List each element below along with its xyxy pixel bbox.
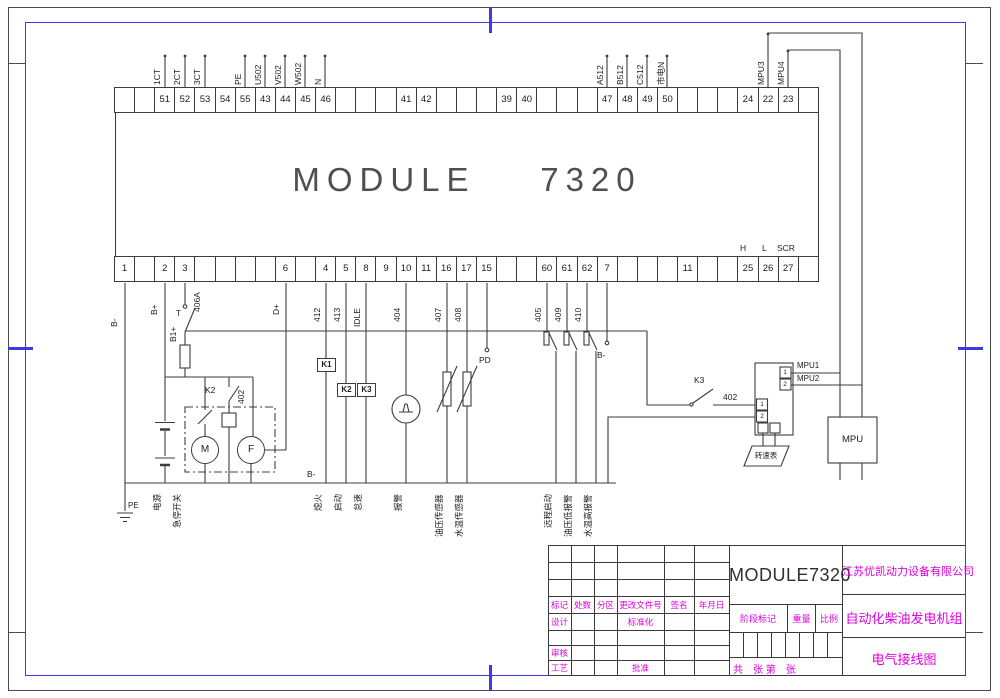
engine-label: 水温高报警 (582, 494, 594, 537)
label-b1-plus: B1+ (168, 327, 178, 342)
tb-drawing-name: 电气接线图 (842, 649, 966, 668)
terminal-cell: 39 (496, 87, 517, 113)
terminal-cell: 52 (174, 87, 195, 113)
conv-terminal-r1: 1 (780, 368, 790, 378)
label-mpu1: MPU1 (797, 361, 819, 370)
terminal-cell: 9 (375, 256, 396, 282)
label-b-minus-7: B- (597, 350, 606, 360)
label-d-plus: D+ (271, 304, 281, 315)
terminal-cell: 15 (476, 256, 497, 282)
label-t-switch: T (176, 309, 181, 318)
oil-alarm-switch-icon (564, 332, 569, 345)
relay-coil-icon (222, 413, 236, 427)
label-402-right: 402 (723, 392, 737, 402)
tb-header-count: 处数 (572, 599, 593, 611)
engine-label: 报警 (392, 494, 404, 511)
ground-icon (117, 513, 133, 522)
terminal-cell: 51 (154, 87, 175, 113)
label-406a: 406A (192, 292, 202, 312)
pin-label-scr: SCR (777, 243, 795, 253)
engine-label: 油压低报警 (562, 494, 574, 537)
terminal-cell: 55 (235, 87, 256, 113)
conv-terminal-r2: 2 (780, 380, 790, 390)
label-mpu2: MPU2 (797, 374, 819, 383)
terminal-cell: 7 (597, 256, 618, 282)
tb-approve: 批准 (618, 662, 663, 674)
tb-stage: 阶段标记 (729, 612, 787, 625)
label-b-minus: B- (109, 319, 119, 328)
terminal-cell: 22 (758, 87, 779, 113)
engine-label: 电源 (151, 494, 163, 511)
label-410: 410 (573, 308, 583, 322)
terminal-cell (697, 256, 718, 282)
terminal-cell: 41 (396, 87, 417, 113)
tb-sheets: 共 张 第 张 (733, 661, 823, 676)
terminal-cell: 48 (617, 87, 638, 113)
terminal-cell: 26 (758, 256, 779, 282)
terminal-cell: 45 (295, 87, 316, 113)
top-wire-label: PE (233, 74, 243, 85)
terminal-cell: 62 (577, 256, 598, 282)
top-wire-label: 3CT (192, 69, 202, 85)
engine-label: 启动 (332, 494, 344, 511)
top-wire-label: C512 (635, 65, 645, 85)
terminal-cell: 44 (275, 87, 296, 113)
terminal-cell (134, 256, 155, 282)
relay-k2: K2 (337, 383, 356, 397)
conv-terminal-1: 1 (757, 400, 767, 410)
label-pe: PE (128, 501, 139, 510)
terminal-cell (717, 87, 738, 113)
mpu-pickup: MPU (828, 417, 877, 463)
terminal-cell (677, 87, 698, 113)
terminal-cell (617, 256, 638, 282)
charging-generator: F (237, 436, 265, 464)
terminal-cell: 27 (778, 256, 799, 282)
top-wire-label: 2CT (172, 69, 182, 85)
tb-header-sign: 签名 (665, 599, 693, 611)
label-b-minus-bus: B- (307, 469, 316, 479)
terminal-cell: 6 (275, 256, 296, 282)
engine-label: 熄火 (312, 494, 324, 511)
remote-start-switch-icon (544, 332, 549, 345)
tb-product: 自动化柴油发电机组 (842, 608, 966, 627)
terminal-cell (798, 256, 819, 282)
tb-header-docno: 更改文件号 (618, 599, 663, 611)
pin-label-l: L (762, 243, 767, 253)
terminal-cell (194, 256, 215, 282)
fuse-icon (180, 345, 190, 368)
label-405: 405 (533, 308, 543, 322)
terminal-cell (215, 256, 236, 282)
terminal-cell: 4 (315, 256, 336, 282)
terminal-cell (536, 87, 557, 113)
terminal-cell (456, 87, 477, 113)
terminal-cell: 47 (597, 87, 618, 113)
terminal-cell (295, 256, 316, 282)
terminal-cell (798, 87, 819, 113)
top-wire-label: B512 (615, 65, 625, 85)
terminal-cell (717, 256, 738, 282)
tb-design: 设计 (549, 616, 570, 628)
label-tachometer: 转速表 (748, 450, 784, 461)
terminal-cell (375, 87, 396, 113)
terminal-cell: 16 (436, 256, 457, 282)
terminal-cell (556, 87, 577, 113)
terminal-cell: 43 (255, 87, 276, 113)
label-pd: PD (479, 355, 491, 365)
terminal-cell (114, 87, 135, 113)
terminal-cell: 25 (737, 256, 758, 282)
terminal-cell (235, 256, 256, 282)
top-wire-label: V502 (273, 65, 283, 85)
label-408: 408 (453, 308, 463, 322)
terminal-cell (516, 256, 537, 282)
tb-process: 工艺 (549, 662, 570, 674)
top-wire-label: 市电N (655, 62, 667, 85)
terminal-cell: 40 (516, 87, 537, 113)
tb-company: 江苏优凯动力设备有限公司 (842, 563, 966, 579)
terminal-cell: 53 (194, 87, 215, 113)
tb-header-date: 年月日 (695, 599, 728, 611)
engine-label: 水温传感器 (453, 494, 465, 537)
buzzer-icon (392, 395, 420, 423)
wire-end-dots (164, 33, 790, 58)
terminal-cell: 5 (335, 256, 356, 282)
label-409: 409 (553, 308, 563, 322)
terminal-cell (697, 87, 718, 113)
top-terminal-row: 5152535455434445464142394047484950242223 (115, 87, 819, 113)
label-407: 407 (433, 308, 443, 322)
tb-review: 审核 (549, 647, 570, 659)
tb-header-zone: 分区 (595, 599, 616, 611)
terminal-cell: 46 (315, 87, 336, 113)
relay-k3: K3 (357, 383, 376, 397)
terminal-cell: 3 (174, 256, 195, 282)
top-wire-label: 1CT (152, 69, 162, 85)
terminal-cell (496, 256, 517, 282)
terminal-cell (577, 87, 598, 113)
terminal-cell (436, 87, 457, 113)
terminal-cell: 8 (355, 256, 376, 282)
engine-label: 远程启动 (542, 494, 554, 528)
label-412: 412 (312, 308, 322, 322)
terminal-cell: 60 (536, 256, 557, 282)
relay-k1: K1 (317, 358, 336, 372)
terminal-cell: 54 (215, 87, 236, 113)
terminal-cell: 61 (556, 256, 577, 282)
terminal-cell (637, 256, 658, 282)
terminal-cell: 42 (416, 87, 437, 113)
label-k3-contact: K3 (694, 375, 704, 385)
top-wire-label: MPU3 (756, 61, 766, 85)
terminal-cell: 50 (657, 87, 678, 113)
terminal-cell: 23 (778, 87, 799, 113)
engine-label: 急停开关 (171, 494, 183, 528)
terminal-cell: 2 (154, 256, 175, 282)
top-wire-label: N (313, 79, 323, 85)
terminal-cell: 24 (737, 87, 758, 113)
terminal-cell (657, 256, 678, 282)
tb-scale: 比例 (816, 612, 842, 625)
starter-motor: M (191, 436, 219, 464)
water-alarm-switch-icon (584, 332, 589, 345)
top-wire-label: W502 (293, 63, 303, 85)
label-idle: IDLE (352, 308, 362, 327)
terminal-cell (355, 87, 376, 113)
label-b-plus: B+ (149, 304, 159, 315)
terminal-cell (255, 256, 276, 282)
top-wire-label: MPU4 (776, 61, 786, 85)
terminal-cell: 11 (677, 256, 698, 282)
terminal-cell: 49 (637, 87, 658, 113)
wiring-diagram: MODULE 7320 5152535455434445464142394047… (0, 0, 1000, 698)
label-k2-contact: K2 (205, 385, 215, 395)
terminal-cell: 11 (416, 256, 437, 282)
terminal-cell: 1 (114, 256, 135, 282)
engine-label: 怠速 (352, 494, 364, 511)
tb-model: MODULE7320 (729, 565, 842, 586)
tb-weight: 重量 (788, 612, 815, 625)
tb-standardize: 标准化 (618, 616, 663, 628)
terminal-cell (335, 87, 356, 113)
module-title: MODULE 7320 (115, 161, 819, 199)
engine-label: 油压传感器 (433, 494, 445, 537)
terminal-cell: 10 (396, 256, 417, 282)
label-402-left: 402 (236, 390, 246, 404)
terminal-cell (476, 87, 497, 113)
conv-terminal-2: 2 (757, 412, 767, 422)
label-413: 413 (332, 308, 342, 322)
bottom-terminal-row: 123645891011161715606162711252627 (115, 256, 819, 282)
label-404: 404 (392, 308, 402, 322)
terminal-cell: 17 (456, 256, 477, 282)
terminal-cell (134, 87, 155, 113)
pin-label-h: H (740, 243, 746, 253)
tb-header-mark: 标记 (549, 599, 570, 611)
top-wire-label: A512 (595, 65, 605, 85)
top-wire-label: U502 (253, 65, 263, 85)
